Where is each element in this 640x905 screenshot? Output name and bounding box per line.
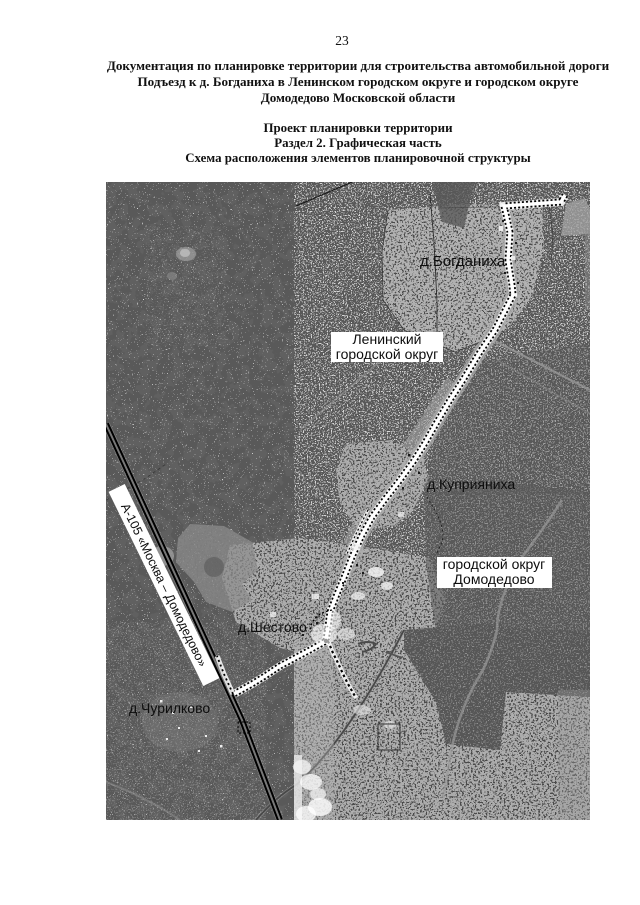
svg-text:д.Богданиха: д.Богданиха	[420, 253, 506, 270]
svg-text:городской округ: городской округ	[336, 346, 438, 362]
svg-text:Домодедово: Домодедово	[453, 571, 534, 587]
svg-text:городской округ: городской округ	[443, 556, 545, 572]
svg-text:Ленинский: Ленинский	[352, 331, 421, 347]
svg-text:д.Шестово: д.Шестово	[238, 619, 307, 635]
svg-text:д.Куприяниха: д.Куприяниха	[427, 476, 515, 492]
svg-text:д.Чурилково: д.Чурилково	[129, 700, 210, 716]
